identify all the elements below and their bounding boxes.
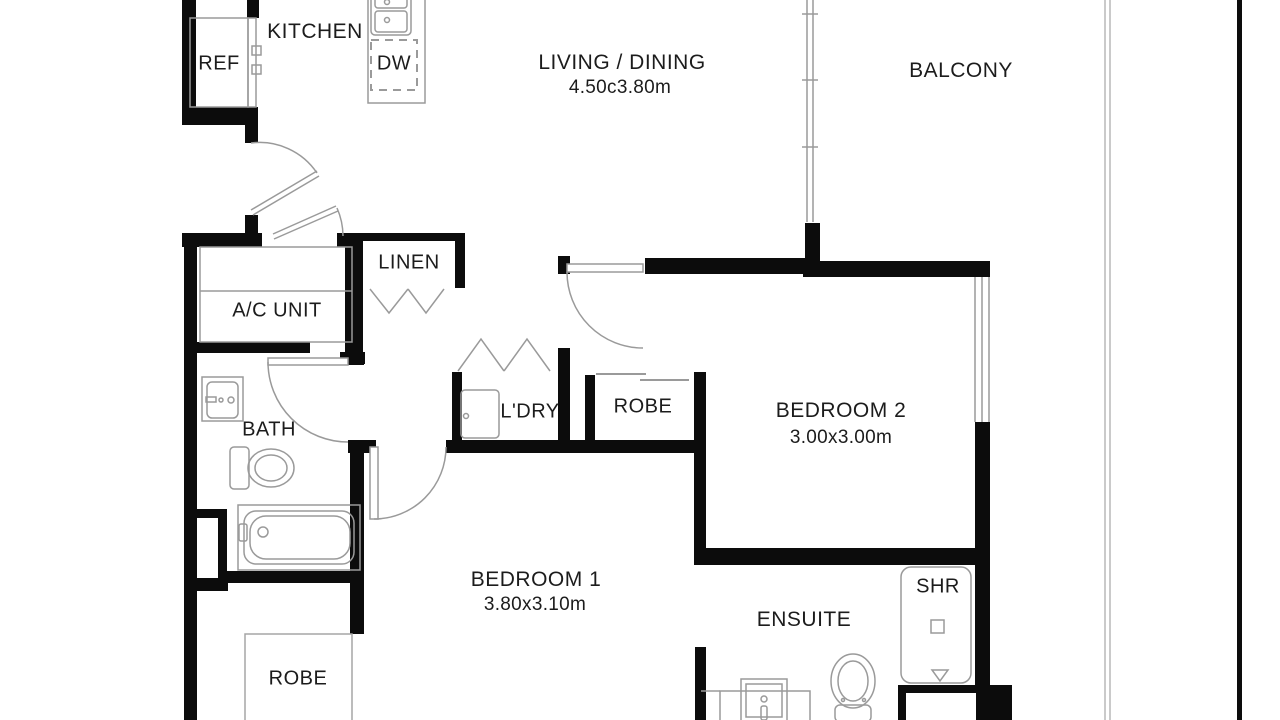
balcony-label: BALCONY <box>909 59 1013 83</box>
shower-label: SHR <box>916 576 960 599</box>
linen-label: LINEN <box>378 252 439 275</box>
balcony-sliding-door-icon <box>802 0 818 222</box>
bedroom2-door-arc <box>567 264 643 348</box>
boundary-line <box>1105 0 1110 720</box>
laundry-bifold-icon <box>458 339 550 371</box>
ac-unit-label: A/C UNIT <box>232 300 322 323</box>
bedroom2-label: BEDROOM 2 <box>776 399 907 423</box>
floor-plan: KITCHEN REF DW LIVING / DINING 4.50c3.80… <box>0 0 1280 720</box>
dishwasher-label: DW <box>377 53 411 76</box>
floor-plan-drawing <box>0 0 1280 720</box>
entry-door-arc <box>251 142 319 215</box>
kitchen-label: KITCHEN <box>267 20 363 44</box>
ensuite-label: ENSUITE <box>757 608 852 632</box>
bedroom1-door-arc <box>370 447 446 519</box>
bathtub-icon <box>238 505 360 570</box>
washing-machine-icon <box>461 390 499 438</box>
fridge-label: REF <box>198 53 240 76</box>
robe-hall-label: ROBE <box>614 396 673 419</box>
bath-toilet-icon <box>230 447 294 489</box>
bedroom2-dims: 3.00x3.00m <box>790 427 892 449</box>
bedroom2-window-icon <box>975 277 989 422</box>
living-dining-dims: 4.50c3.80m <box>569 77 671 99</box>
ensuite-toilet-icon <box>831 654 875 720</box>
bedroom1-label: BEDROOM 1 <box>471 568 602 592</box>
laundry-label: L'DRY <box>500 401 559 424</box>
robe-bedroom1-label: ROBE <box>269 668 328 691</box>
robe-sliding-door-icon <box>596 374 689 380</box>
ac-unit-closet <box>200 247 352 342</box>
ensuite-vanity-icon <box>701 679 810 720</box>
hall-door-arc <box>273 206 343 239</box>
bath-label: BATH <box>242 419 296 442</box>
bath-vanity-icon <box>202 377 243 421</box>
linen-bifold-icon <box>370 289 444 313</box>
bedroom1-dims: 3.80x3.10m <box>484 594 586 616</box>
kitchen-sink-icon <box>371 0 411 35</box>
living-dining-label: LIVING / DINING <box>538 51 705 75</box>
